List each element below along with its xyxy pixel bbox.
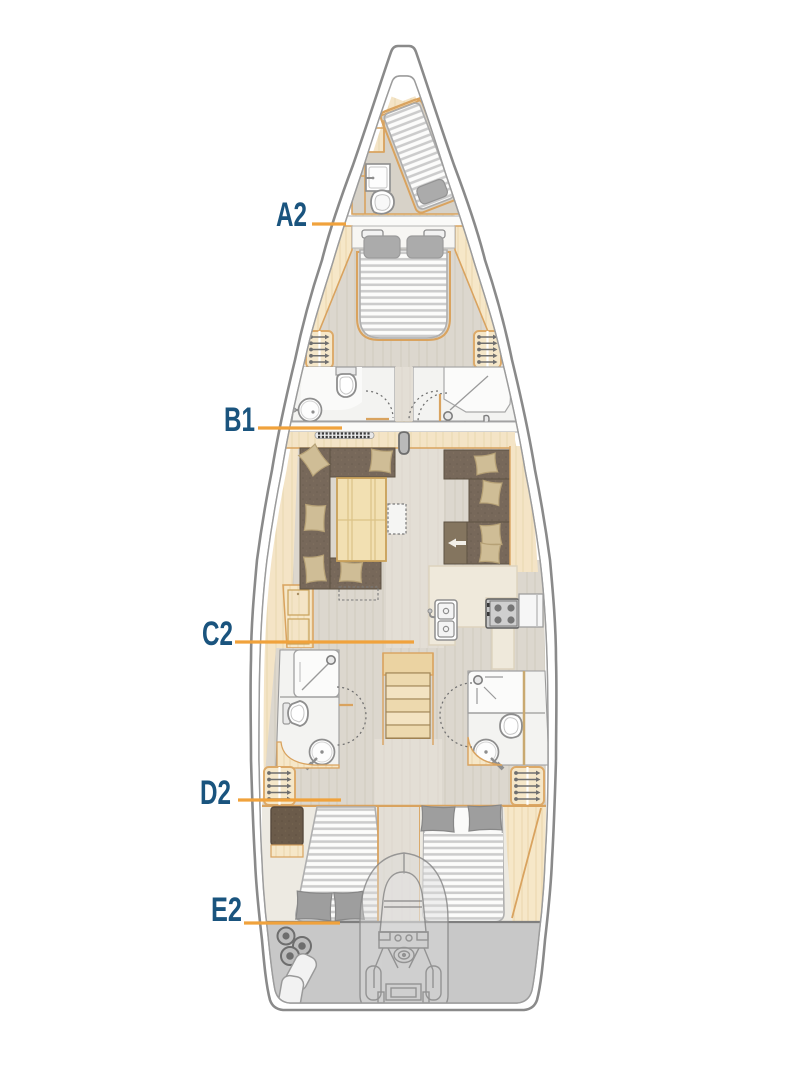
svg-text:D2: D2 <box>200 774 231 812</box>
svg-text:E2: E2 <box>211 891 242 929</box>
svg-text:A2: A2 <box>276 196 307 234</box>
svg-text:C2: C2 <box>202 615 233 653</box>
svg-text:B1: B1 <box>224 401 255 439</box>
